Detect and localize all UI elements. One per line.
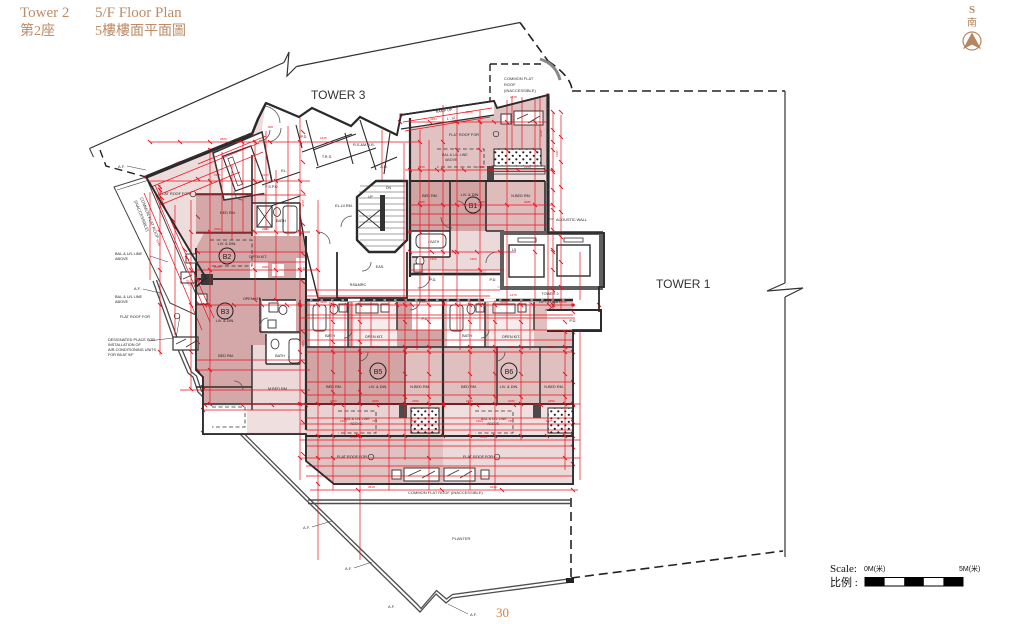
svg-text:COMMON FLAT ROOF (INACCESSIBLE: COMMON FLAT ROOF (INACCESSIBLE) xyxy=(408,490,483,495)
svg-text:P.D.: P.D. xyxy=(490,278,497,282)
svg-text:• BATH: • BATH xyxy=(428,240,440,244)
svg-text:2080: 2080 xyxy=(372,399,379,403)
svg-text:F.S.P.D.: F.S.P.D. xyxy=(265,185,278,189)
svg-text:BAL.& U/L LINE: BAL.& U/L LINE xyxy=(481,417,507,421)
svg-text:N.BED RM.: N.BED RM. xyxy=(511,194,531,198)
svg-text:EL.: EL. xyxy=(281,169,287,173)
svg-text:BED RM.: BED RM. xyxy=(218,354,234,358)
svg-text:OPEN KIT.: OPEN KIT. xyxy=(502,335,520,339)
svg-text:9233: 9233 xyxy=(490,485,497,489)
svg-text:2350: 2350 xyxy=(466,345,473,349)
svg-text:1525: 1525 xyxy=(430,257,437,261)
svg-text:1525: 1525 xyxy=(412,345,419,349)
svg-text:730: 730 xyxy=(372,419,377,423)
svg-text:BAL.& U/L LINE: BAL.& U/L LINE xyxy=(115,295,143,299)
svg-text:1604: 1604 xyxy=(476,419,483,423)
svg-text:P.D.: P.D. xyxy=(570,319,577,323)
svg-text:Scale:: Scale: xyxy=(830,563,857,575)
svg-text:COMMON FLAT: COMMON FLAT xyxy=(504,76,534,81)
svg-text:2350: 2350 xyxy=(262,227,269,231)
svg-text:1525: 1525 xyxy=(420,300,427,304)
svg-text:N.BED RM.: N.BED RM. xyxy=(544,385,564,389)
svg-text:2080: 2080 xyxy=(508,345,515,349)
svg-text:LIV. & DIN.: LIV. & DIN. xyxy=(500,385,519,389)
svg-text:B2: B2 xyxy=(223,254,232,261)
svg-text:BATH: BATH xyxy=(462,334,472,338)
svg-text:Tower 2: Tower 2 xyxy=(20,5,69,21)
svg-text:LIV. & DIN.: LIV. & DIN. xyxy=(461,193,480,197)
svg-text:R.S.&M.R.R.: R.S.&M.R.R. xyxy=(353,143,375,147)
svg-text:2350: 2350 xyxy=(524,165,531,169)
svg-text:B5: B5 xyxy=(374,369,383,376)
svg-text:UP: UP xyxy=(368,195,374,199)
svg-text:A.D.: A.D. xyxy=(380,165,387,169)
svg-text:LIV. & DIN.: LIV. & DIN. xyxy=(216,319,235,323)
svg-text:BATH: BATH xyxy=(276,219,286,223)
svg-text:BAL.& U/L LINE: BAL.& U/L LINE xyxy=(344,417,370,421)
svg-text:AIR-CONDITIONING UNITS: AIR-CONDITIONING UNITS xyxy=(108,348,157,352)
svg-text:2125: 2125 xyxy=(214,173,221,177)
svg-text:30: 30 xyxy=(496,605,509,620)
svg-text:2080: 2080 xyxy=(508,399,515,403)
svg-text:B3: B3 xyxy=(221,309,230,316)
svg-text:3818: 3818 xyxy=(368,485,375,489)
svg-text:4536: 4536 xyxy=(350,435,357,439)
svg-text:ACOUSTIC WALL: ACOUSTIC WALL xyxy=(556,218,587,222)
svg-text:5樓樓面平面圖: 5樓樓面平面圖 xyxy=(95,23,186,39)
svg-text:2080: 2080 xyxy=(372,345,379,349)
svg-text:FLAT ROOF FOR: FLAT ROOF FOR xyxy=(449,133,479,137)
svg-text:730: 730 xyxy=(508,419,513,423)
svg-text:P.D.: P.D. xyxy=(301,135,308,139)
svg-text:2080: 2080 xyxy=(262,265,269,269)
svg-text:BATH: BATH xyxy=(275,354,285,358)
svg-text:2350: 2350 xyxy=(330,399,337,403)
svg-text:3484: 3484 xyxy=(555,150,559,157)
svg-text:P.D.: P.D. xyxy=(430,278,437,282)
svg-text:ROOF: ROOF xyxy=(504,82,516,87)
svg-text:LIFT LOBBY: LIFT LOBBY xyxy=(539,300,561,304)
svg-text:PLANTER: PLANTER xyxy=(452,536,471,541)
svg-text:5/F Floor Plan: 5/F Floor Plan xyxy=(95,5,182,21)
svg-text:FLAT ROOF FOR: FLAT ROOF FOR xyxy=(337,455,367,459)
svg-text:2820: 2820 xyxy=(220,137,227,141)
svg-text:BED RM.: BED RM. xyxy=(422,194,438,198)
svg-text:EL.LV.RM.: EL.LV.RM. xyxy=(335,204,353,208)
svg-text:ABOVE: ABOVE xyxy=(445,158,458,162)
svg-text:2350: 2350 xyxy=(214,227,221,231)
svg-text:(INACCESSIBLE): (INACCESSIBLE) xyxy=(504,88,536,93)
svg-text:A.F.: A.F. xyxy=(303,525,310,530)
svg-text:T.R.S.: T.R.S. xyxy=(322,155,332,159)
svg-text:BED RM.: BED RM. xyxy=(461,385,477,389)
svg-text:2350: 2350 xyxy=(466,399,473,403)
svg-text:3484: 3484 xyxy=(430,117,437,121)
svg-text:2080: 2080 xyxy=(214,265,221,269)
svg-text:BED RM.: BED RM. xyxy=(220,211,236,215)
svg-text:A.F.: A.F. xyxy=(470,612,477,617)
svg-text:4536: 4536 xyxy=(480,435,487,439)
svg-text:LIV. & DIN.: LIV. & DIN. xyxy=(369,385,388,389)
svg-text:1525: 1525 xyxy=(410,419,417,423)
svg-text:1525: 1525 xyxy=(320,136,327,140)
svg-text:BAL.& U/L LINE: BAL.& U/L LINE xyxy=(442,153,468,157)
svg-text:FLAT ROOF FOR: FLAT ROOF FOR xyxy=(120,315,150,319)
svg-text:A.F.: A.F. xyxy=(388,604,395,609)
svg-text:EAS.: EAS. xyxy=(376,265,385,269)
svg-text:3100: 3100 xyxy=(500,300,507,304)
svg-text:OPEN KIT.: OPEN KIT. xyxy=(243,297,261,301)
svg-text:B6: B6 xyxy=(505,369,514,376)
svg-text:2350: 2350 xyxy=(418,165,425,169)
svg-text:S: S xyxy=(969,4,975,16)
svg-text:2125: 2125 xyxy=(262,173,269,177)
svg-text:2350: 2350 xyxy=(412,399,419,403)
svg-text:2080: 2080 xyxy=(524,200,531,204)
svg-text:第2座: 第2座 xyxy=(20,22,55,39)
svg-text:BAL.& U/L LINE: BAL.& U/L LINE xyxy=(115,252,143,256)
svg-text:2350: 2350 xyxy=(548,399,555,403)
svg-text:TOWER 3: TOWER 3 xyxy=(311,88,366,102)
svg-text:FOR B5 AT 9/F: FOR B5 AT 9/F xyxy=(108,353,134,357)
svg-text:南: 南 xyxy=(967,16,977,29)
svg-text:0M(米): 0M(米) xyxy=(864,564,885,573)
svg-text:FLAT ROOF FOR: FLAT ROOF FOR xyxy=(463,455,493,459)
svg-text:2350: 2350 xyxy=(478,165,485,169)
svg-text:2878: 2878 xyxy=(510,95,517,99)
svg-text:900: 900 xyxy=(268,125,273,129)
svg-text:2125: 2125 xyxy=(301,200,305,207)
svg-text:2878: 2878 xyxy=(539,130,543,137)
svg-text:ABOVE: ABOVE xyxy=(115,300,129,304)
svg-text:1475: 1475 xyxy=(510,293,517,297)
svg-text:TOWER 1: TOWER 1 xyxy=(656,277,711,291)
svg-text:1625: 1625 xyxy=(470,257,477,261)
svg-text:M.BED RM.: M.BED RM. xyxy=(268,387,288,391)
svg-text:A.F.: A.F. xyxy=(134,287,141,291)
svg-text:TOWER 2: TOWER 2 xyxy=(541,292,558,296)
svg-text:1604: 1604 xyxy=(340,419,347,423)
svg-text:ABOVE: ABOVE xyxy=(115,257,129,261)
svg-text:比例 :: 比例 : xyxy=(830,575,858,589)
svg-text:A.F.: A.F. xyxy=(118,164,125,169)
svg-text:1525: 1525 xyxy=(560,300,567,304)
svg-text:OPEN KIT.: OPEN KIT. xyxy=(249,255,267,259)
svg-text:2350: 2350 xyxy=(330,345,337,349)
svg-text:N.BED RM.: N.BED RM. xyxy=(410,385,430,389)
svg-text:2080: 2080 xyxy=(418,200,425,204)
svg-text:DESIGNATED PLACE FOR: DESIGNATED PLACE FOR xyxy=(108,338,155,342)
svg-text:2080: 2080 xyxy=(478,200,485,204)
svg-text:3100: 3100 xyxy=(320,300,327,304)
svg-text:DN: DN xyxy=(386,186,392,190)
svg-text:5050: 5050 xyxy=(466,110,473,114)
svg-text:RS&MRC: RS&MRC xyxy=(350,283,367,287)
svg-text:5M(米): 5M(米) xyxy=(959,564,980,573)
svg-text:1525: 1525 xyxy=(546,419,553,423)
svg-text:3100: 3100 xyxy=(301,340,305,347)
svg-text:LIV. & DIN.: LIV. & DIN. xyxy=(218,242,237,246)
svg-text:L5: L5 xyxy=(512,248,516,252)
svg-text:B1: B1 xyxy=(469,203,478,210)
svg-text:OPEN KIT.: OPEN KIT. xyxy=(365,335,383,339)
svg-text:INSTALLATION OF: INSTALLATION OF xyxy=(108,343,141,347)
svg-text:1525: 1525 xyxy=(548,345,555,349)
svg-text:A.F.: A.F. xyxy=(345,566,352,571)
svg-text:BED RM.: BED RM. xyxy=(326,385,342,389)
